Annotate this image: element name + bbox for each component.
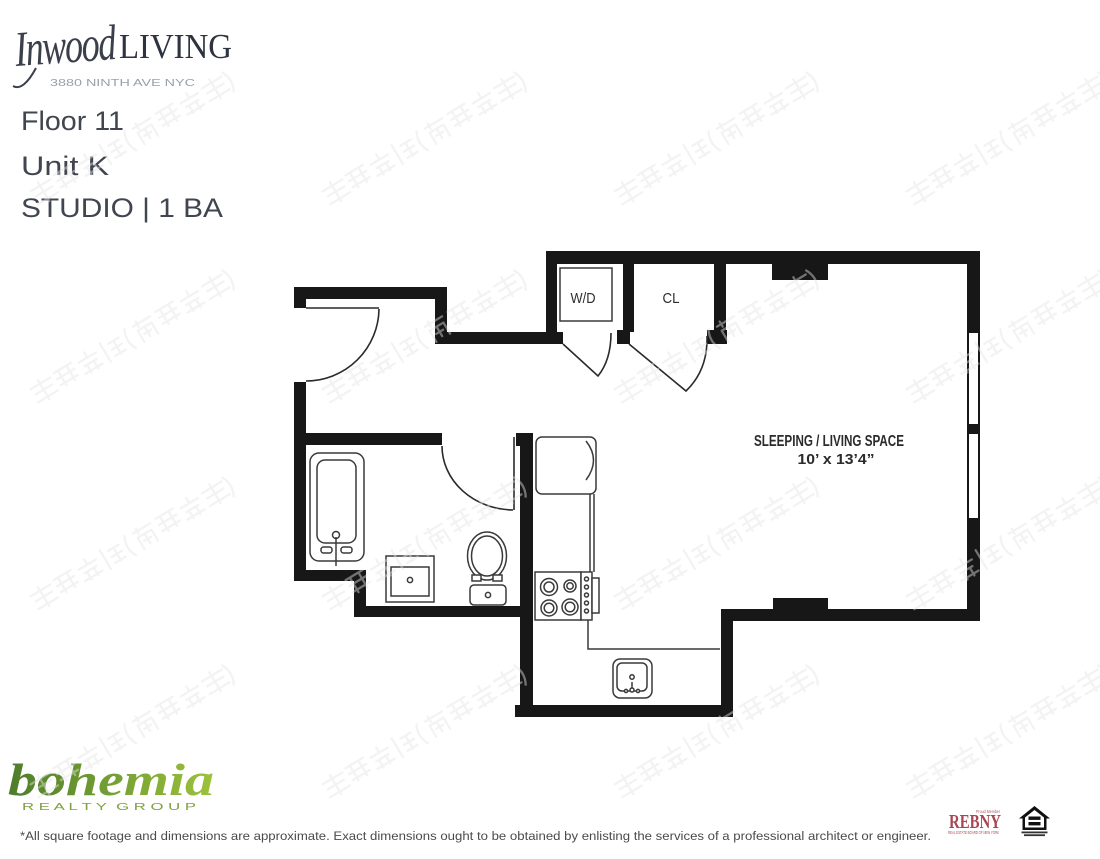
svg-text:3880 NINTH AVE NYC: 3880 NINTH AVE NYC [50, 77, 196, 89]
svg-text:Floor 11: Floor 11 [21, 106, 124, 136]
svg-text:*All square footage and dimens: *All square footage and dimensions are a… [20, 829, 931, 843]
svg-text:SLEEPING / LIVING SPACE: SLEEPING / LIVING SPACE [754, 433, 904, 450]
svg-text:REAL ESTATE BOARD OF NEW YORK: REAL ESTATE BOARD OF NEW YORK [948, 830, 999, 835]
svg-text:LIVING: LIVING [119, 27, 232, 66]
svg-text:CL: CL [663, 291, 680, 307]
svg-text:R E A L T Y G R O U P: R E A L T Y G R O U P [22, 802, 197, 813]
svg-text:W/D: W/D [571, 291, 596, 307]
svg-text:Inwood: Inwood [12, 14, 119, 77]
svg-text:10’ x 13’4”: 10’ x 13’4” [798, 452, 875, 468]
